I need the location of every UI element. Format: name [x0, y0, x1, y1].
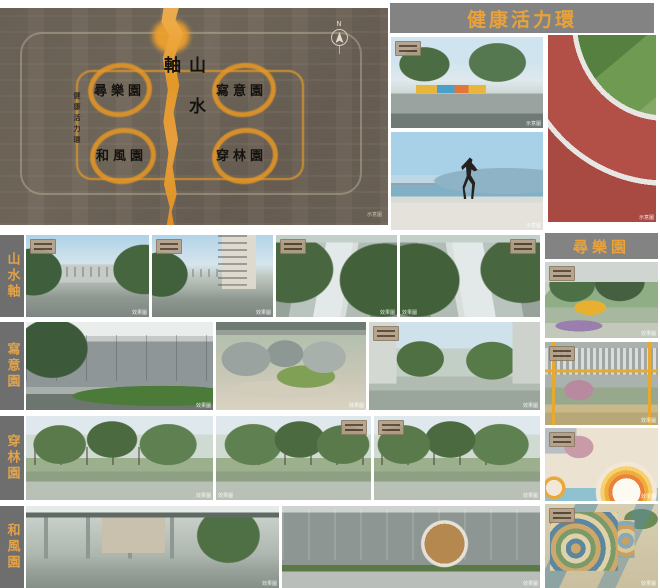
north-letter: N [328, 20, 350, 28]
photo-caption: 示意圖 [526, 222, 541, 229]
zone-label-hefengyuan: 和風園 [96, 145, 147, 164]
zone-label-xunleyuan: 尋樂園 [94, 80, 145, 99]
photo-water-axis-aerial-1: 效果圖 [276, 235, 397, 317]
photo-caption: 效果圖 [523, 492, 538, 499]
developer-stamp [280, 239, 306, 254]
developer-stamp [395, 41, 421, 56]
photo-street-view-1: 效果圖 [26, 235, 149, 317]
photo-caption: 效果圖 [523, 402, 538, 409]
photo-feature-wall-garden: 效果圖 [26, 322, 213, 410]
developer-stamp [549, 508, 575, 523]
runner-silhouette [461, 157, 478, 199]
developer-stamp [549, 346, 575, 361]
photo-zen-rock-garden: 效果圖 [216, 322, 366, 410]
photo-caption: 效果圖 [641, 493, 656, 500]
photo-caption: 效果圖 [262, 580, 277, 587]
row-label-text: 山水軸 [3, 252, 22, 300]
photo-garden-pavilion: 效果圖 [26, 506, 279, 588]
axis-title: 山水軸 [158, 56, 208, 176]
photo-caption: 效果圖 [641, 417, 656, 424]
photo-yellow-frame-playground: 效果圖 [545, 342, 658, 425]
photo-caption: 示意圖 [639, 214, 654, 221]
zone-label-xieyiyuan: 寫意園 [216, 80, 267, 99]
section-title-health-ring: 健康活力環 [390, 3, 654, 33]
photo-caption: 效果圖 [641, 580, 656, 587]
developer-stamp [510, 239, 536, 254]
row-label-text: 寫意園 [3, 342, 22, 390]
photo-aerial-colorful-playground: 效果圖 [545, 504, 658, 588]
compass-circle [331, 29, 348, 46]
photo-rainbow-arch-playground: 效果圖 [545, 428, 658, 501]
section-title-text: 健康活力環 [467, 5, 577, 32]
developer-stamp [549, 266, 575, 281]
north-arrow-icon: N [328, 20, 350, 54]
developer-stamp [156, 239, 182, 254]
photo-caption: 效果圖 [641, 330, 656, 337]
row-label-text: 和風園 [3, 523, 22, 571]
row-label-chuanlinyuan: 穿林園 [0, 416, 24, 500]
photo-caption: 效果圖 [256, 309, 271, 316]
photo-tree-playground: 效果圖 [545, 262, 658, 338]
photo-caption: 效果圖 [523, 580, 538, 587]
photo-water-axis-aerial-2: 效果圖 [400, 235, 540, 317]
photo-caption: 效果圖 [380, 309, 395, 316]
photo-caption: 示意圖 [526, 120, 541, 127]
photo-caption: 效果圖 [218, 492, 233, 499]
photo-caption: 效果圖 [196, 402, 211, 409]
plan-caption: 示意圖 [367, 211, 382, 218]
zone-label-chuanlinyuan: 穿林園 [216, 145, 267, 164]
row-label-hefengyuan: 和風園 [0, 506, 24, 588]
row-label-shanshuizhou: 山水軸 [0, 235, 24, 317]
row-label-xieyiyuan: 寫意園 [0, 322, 24, 410]
photo-park-playground: 示意圖 [391, 37, 543, 128]
photo-waterfront-jogger: 示意圖 [391, 132, 543, 230]
photo-caption: 效果圖 [402, 309, 417, 316]
site-plan: 山水軸 尋樂園 寫意園 和風園 穿林園 健康活力環 N 示意圖 [0, 8, 388, 225]
compass-tail [339, 46, 340, 54]
column-title-text: 尋樂園 [573, 236, 630, 257]
developer-stamp [341, 420, 367, 435]
developer-stamp [373, 326, 399, 341]
compass-needle [336, 32, 344, 43]
photo-forest-grove-2: 效果圖 [216, 416, 371, 500]
photo-moon-gate-wall: 效果圖 [282, 506, 540, 588]
developer-stamp [30, 239, 56, 254]
presentation-page: 山水軸 尋樂園 寫意園 和風園 穿林園 健康活力環 N 示意圖 健康活力環 示意… [0, 0, 660, 588]
photo-caption: 效果圖 [132, 309, 147, 316]
developer-stamp [378, 420, 404, 435]
photo-caption: 效果圖 [196, 492, 211, 499]
photo-caption: 效果圖 [349, 402, 364, 409]
photo-forest-grove-1: 效果圖 [26, 416, 213, 500]
column-title-xunleyuan: 尋樂園 [545, 233, 658, 259]
developer-stamp [549, 432, 575, 447]
photo-street-view-2: 效果圖 [152, 235, 273, 317]
row-label-text: 穿林園 [3, 434, 22, 482]
photo-tree-lined-avenue: 效果圖 [369, 322, 540, 410]
photo-running-track: 示意圖 [548, 35, 656, 222]
photo-forest-grove-3: 效果圖 [374, 416, 540, 500]
health-ring-label: 健康活力環 [72, 92, 82, 162]
